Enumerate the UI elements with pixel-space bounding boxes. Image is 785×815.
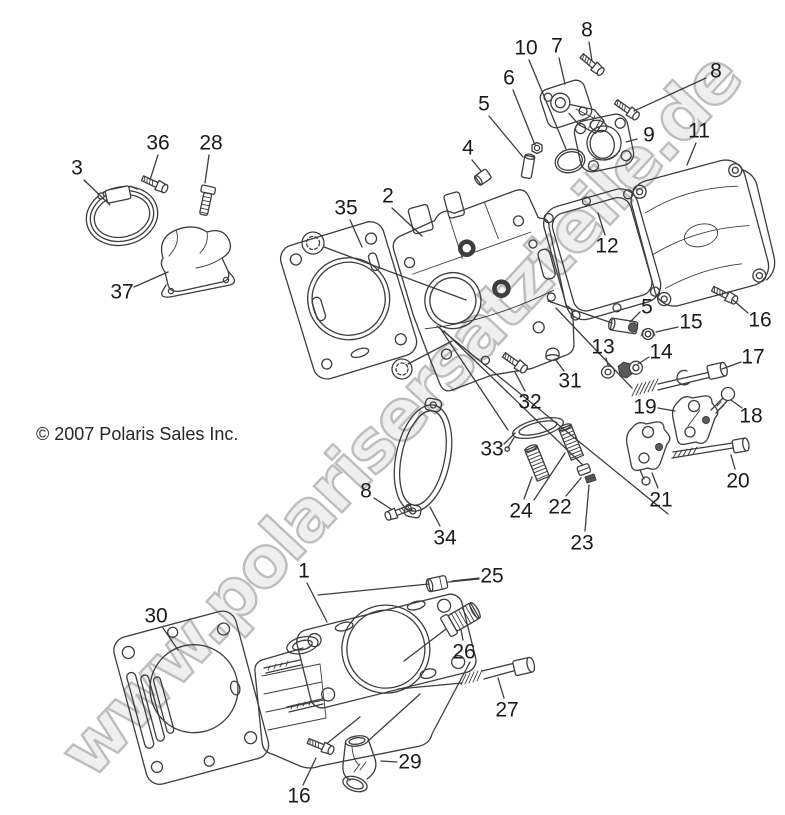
callout-label-8: 8 xyxy=(360,481,372,502)
part-22-keeper xyxy=(577,463,591,476)
part-21-rocker-arm xyxy=(627,422,670,485)
part-29-elbow-fitting xyxy=(341,734,376,794)
part-4-cap xyxy=(473,169,492,187)
leader-line-32 xyxy=(515,372,525,391)
callout-label-16: 16 xyxy=(748,310,771,331)
callout-label-34: 34 xyxy=(433,528,456,549)
callout-label-36: 36 xyxy=(146,133,169,154)
leader-line-26 xyxy=(461,630,463,640)
part-35-head-gasket xyxy=(277,218,420,382)
leader-line-4 xyxy=(472,160,481,171)
part-20-bolt xyxy=(672,438,750,458)
callout-label-14: 14 xyxy=(649,342,672,363)
part-30-base-gasket xyxy=(111,608,272,787)
leader-line-15 xyxy=(656,327,678,332)
callout-label-25: 25 xyxy=(480,566,503,587)
leader-line-5 xyxy=(489,116,523,157)
callout-label-24: 24 xyxy=(509,501,532,522)
part-7-water-outlet xyxy=(538,74,611,149)
leader-line-2 xyxy=(392,208,422,236)
leader-line-30 xyxy=(163,628,178,650)
part-14-bushing xyxy=(618,359,644,380)
callout-label-1: 1 xyxy=(298,561,310,582)
leader-line-23 xyxy=(585,485,589,531)
part-16-screw-bottom xyxy=(306,736,335,755)
leader-line-29 xyxy=(381,761,397,762)
part-34-gasket xyxy=(384,394,462,523)
part-28-bolt xyxy=(196,185,216,216)
leader-line-12 xyxy=(598,213,605,235)
leader-line-14 xyxy=(638,357,649,364)
leader-line-16 xyxy=(733,300,748,313)
callout-label-32: 32 xyxy=(518,392,541,413)
parts-artwork xyxy=(0,0,785,815)
part-1-cylinder xyxy=(255,586,479,768)
callout-label-27: 27 xyxy=(495,700,518,721)
leader-line-8 xyxy=(634,78,706,111)
callout-label-37: 37 xyxy=(110,282,133,303)
callout-label-8: 8 xyxy=(581,20,593,41)
part-15-nut xyxy=(641,329,655,340)
callout-label-7: 7 xyxy=(551,36,563,57)
callout-label-17: 17 xyxy=(741,347,764,368)
callout-label-26: 26 xyxy=(452,642,475,663)
part-33-valve xyxy=(500,413,567,451)
callout-label-11: 11 xyxy=(688,121,710,142)
callout-label-10: 10 xyxy=(514,38,537,59)
leader-line-10 xyxy=(529,60,566,149)
callout-label-2: 2 xyxy=(382,186,394,207)
copyright-text: © 2007 Polaris Sales Inc. xyxy=(36,424,238,445)
leader-line-11 xyxy=(687,143,696,165)
leader-line-28 xyxy=(205,155,209,183)
leader-line-8 xyxy=(374,498,391,509)
part-25-tappet xyxy=(425,575,448,592)
callout-label-4: 4 xyxy=(462,138,474,159)
leader-line-6 xyxy=(513,90,535,145)
part-23-keeper xyxy=(585,474,596,483)
part-13-washer xyxy=(600,365,616,380)
parts-diagram-page: www.polarisersatzteile.de xyxy=(0,0,785,815)
callout-label-6: 6 xyxy=(503,68,515,89)
leader-line-27 xyxy=(498,678,504,698)
leader-line-24 xyxy=(524,477,532,499)
callout-label-19: 19 xyxy=(633,397,656,418)
callout-label-31: 31 xyxy=(558,371,581,392)
callout-label-15: 15 xyxy=(679,312,702,333)
leader-line-36 xyxy=(150,155,158,180)
part-10-o-ring xyxy=(553,146,588,176)
leader-line-16 xyxy=(303,758,316,785)
part-11-valve-cover xyxy=(627,153,782,310)
callout-label-28: 28 xyxy=(199,133,222,154)
part-5-dowel-pin-mid xyxy=(608,318,639,334)
leader-line-7 xyxy=(559,58,565,84)
part-8-screw-left xyxy=(384,503,413,522)
leader-line-5 xyxy=(630,312,640,322)
leader-line-21 xyxy=(652,473,658,488)
leader-line-1 xyxy=(307,583,327,622)
callout-label-13: 13 xyxy=(591,337,614,358)
callout-label-22: 22 xyxy=(548,497,571,518)
callout-label-29: 29 xyxy=(398,752,421,773)
part-6-nut xyxy=(532,143,542,154)
part-19-rocker-arm xyxy=(673,396,718,445)
callout-label-23: 23 xyxy=(570,533,593,554)
leader-line-22 xyxy=(566,478,581,496)
part-17-adjuster-stud xyxy=(632,362,728,396)
callout-label-30: 30 xyxy=(144,606,167,627)
callout-label-16: 16 xyxy=(287,786,310,807)
leader-line-34 xyxy=(430,507,440,526)
callout-label-21: 21 xyxy=(649,490,672,511)
leader-line-20 xyxy=(731,455,735,469)
callout-label-5: 5 xyxy=(641,297,653,318)
part-37-intake-boot xyxy=(161,227,234,297)
callout-label-18: 18 xyxy=(739,406,762,427)
callout-label-20: 20 xyxy=(726,471,749,492)
callout-label-5: 5 xyxy=(478,94,490,115)
callout-label-8: 8 xyxy=(710,61,722,82)
callout-label-35: 35 xyxy=(334,198,357,219)
part-3-hose-clamp xyxy=(80,179,164,253)
callout-label-9: 9 xyxy=(643,125,655,146)
leader-line-37 xyxy=(134,272,168,287)
part-8-screw-top xyxy=(579,52,606,77)
callout-label-33: 33 xyxy=(480,439,503,460)
callout-label-3: 3 xyxy=(71,158,83,179)
callout-label-12: 12 xyxy=(595,236,618,257)
